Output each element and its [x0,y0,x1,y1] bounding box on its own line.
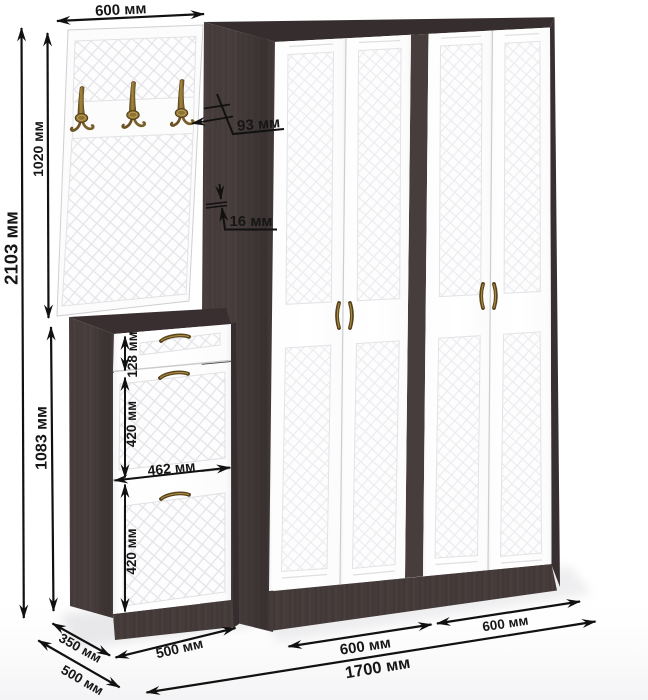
svg-text:2103 мм: 2103 мм [1,211,22,285]
svg-text:16 мм: 16 мм [229,213,272,230]
svg-text:420 мм: 420 мм [124,528,139,574]
svg-text:420 мм: 420 мм [124,401,139,447]
svg-text:128 мм: 128 мм [125,331,140,377]
svg-text:1083 мм: 1083 мм [34,406,51,470]
svg-text:600 мм: 600 мм [95,0,147,20]
svg-text:1020 мм: 1020 мм [30,121,46,177]
